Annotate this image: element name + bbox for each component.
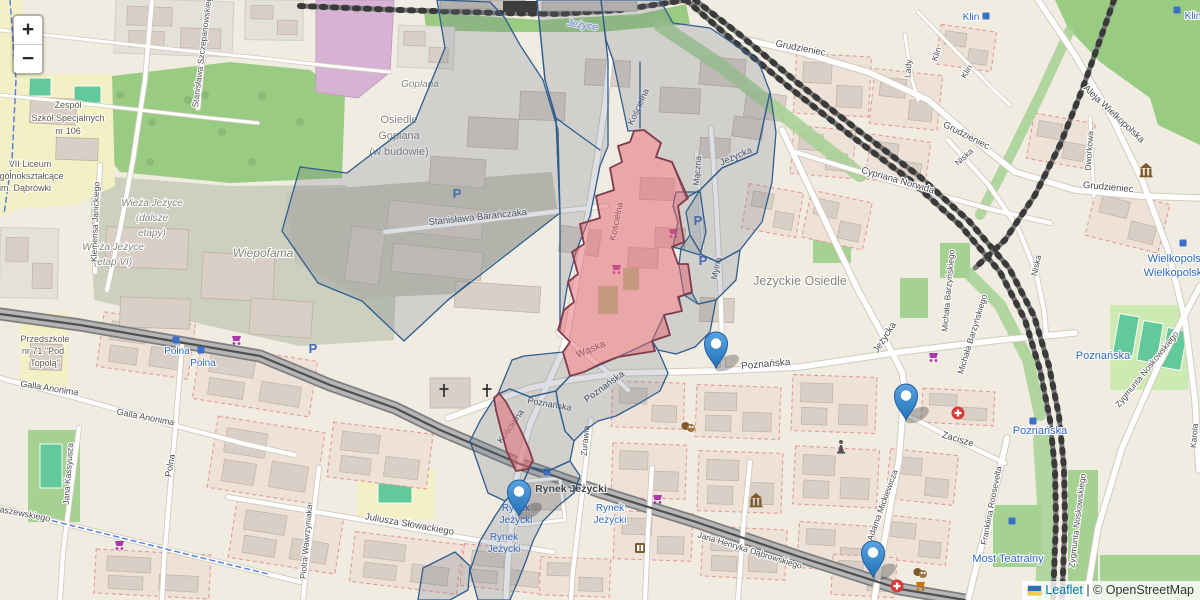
tree-icon — [116, 91, 124, 99]
map-label: Polna — [164, 346, 190, 357]
zoom-control: + − — [12, 14, 44, 75]
city-block — [697, 451, 783, 514]
stop-icon — [1174, 7, 1181, 14]
attribution-separator: | — [1083, 583, 1093, 597]
building — [119, 297, 190, 329]
map-label: Rynek — [596, 503, 625, 514]
tree-icon — [296, 118, 304, 126]
map-label: etapy) — [138, 228, 166, 239]
map-label: Przedszkole — [20, 334, 69, 344]
building — [249, 298, 313, 338]
city-block — [791, 375, 877, 434]
map-label: Lady — [902, 58, 914, 78]
stop-icon — [1030, 418, 1037, 425]
map-label: Jeżyckie Osiedle — [753, 274, 847, 288]
map-label: Zespół — [54, 100, 81, 110]
osm-attribution: © OpenStreetMap — [1093, 583, 1194, 597]
map-label: Ogólnokształcące — [0, 171, 64, 181]
hospital-icon — [891, 580, 904, 593]
zoom-in-button[interactable]: + — [14, 16, 42, 45]
map-label: Polna — [190, 358, 216, 369]
map-label: im. Dąbrówki — [0, 183, 51, 193]
stop-icon — [1180, 240, 1187, 247]
stop-icon — [1009, 518, 1016, 525]
cinema-icon — [635, 543, 645, 553]
map-label: Most Teatralny — [972, 553, 1044, 565]
stop-icon — [173, 337, 180, 344]
map-app: PPPPGoplanaOsiedleGoplana(w budowie)Wież… — [0, 0, 1200, 600]
tree-icon — [218, 128, 226, 136]
tree-icon — [148, 118, 156, 126]
city-block — [245, 0, 304, 41]
map-label: Klin — [1185, 11, 1200, 22]
leaflet-link[interactable]: Leaflet — [1045, 583, 1083, 597]
city-block — [695, 385, 781, 440]
tree-icon — [258, 92, 266, 100]
map-label: Wiepofama — [233, 246, 294, 260]
map-label: nr 106 — [55, 126, 81, 136]
map-label: Szkół Specjalnych — [31, 113, 104, 123]
stop-icon — [983, 13, 990, 20]
landuse-area — [900, 278, 928, 318]
attribution-bar: Leaflet | © OpenStreetMap — [1022, 581, 1200, 600]
svg-text:P: P — [309, 341, 318, 356]
map-label: Wieża Jeżyce — [121, 198, 183, 209]
stop-icon — [198, 347, 205, 354]
zoom-out-button[interactable]: − — [14, 45, 42, 73]
map-label: Topolą" — [30, 358, 60, 368]
map-label: Wielkopolska — [1148, 253, 1200, 265]
landuse-area — [90, 62, 345, 183]
tree-icon — [248, 158, 256, 166]
tree-icon — [146, 158, 154, 166]
parking-icon: P — [309, 341, 318, 356]
ukraine-flag-icon — [1028, 586, 1041, 595]
map-label: nr 71 "Pod — [22, 346, 64, 356]
map-label: Poznańska — [1013, 425, 1068, 437]
map-label: Klin — [963, 12, 980, 23]
map-label: Karola — [1188, 423, 1200, 449]
city-block — [793, 446, 880, 508]
building — [56, 137, 99, 160]
building — [430, 378, 470, 408]
map-label: Wielkopolska — [1144, 267, 1200, 279]
map-label: (etap VI) — [94, 257, 132, 268]
hospital-icon — [952, 407, 965, 420]
map-label: (dalsze — [136, 213, 169, 224]
map-label: Poznańska — [1076, 350, 1131, 362]
map-label: Jeżycki — [594, 515, 627, 526]
map-label: VII Liceum — [9, 159, 52, 169]
landuse-area — [40, 444, 62, 488]
map-canvas[interactable]: PPPPGoplanaOsiedleGoplana(w budowie)Wież… — [0, 0, 1200, 600]
city-block — [0, 227, 59, 298]
tree-icon — [201, 91, 209, 99]
